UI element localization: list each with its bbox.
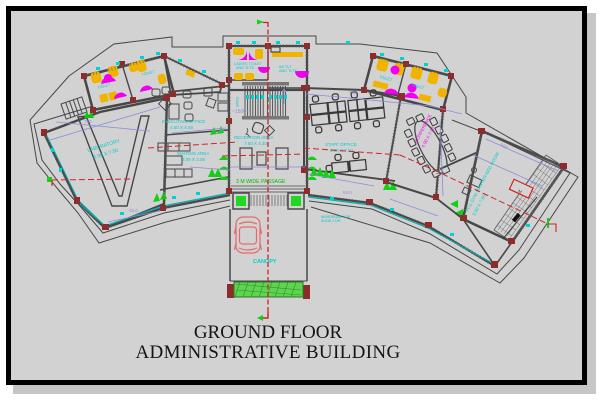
svg-text:AND TLTS: AND TLTS	[279, 69, 297, 73]
svg-text:STAIR: STAIR	[235, 97, 239, 108]
svg-text:ADMINISTRATIVE BUILDING: ADMINISTRATIVE BUILDING	[135, 342, 400, 363]
svg-text:7.50 X 4.40: 7.50 X 4.40	[244, 141, 268, 146]
svg-text:AND TLTS: AND TLTS	[236, 66, 254, 70]
svg-text:~1500~: ~1500~	[232, 109, 249, 115]
svg-text:3 M WIDE PASSAGE: 3 M WIDE PASSAGE	[236, 179, 286, 185]
svg-text:EXECUTIVE OFFICE: EXECUTIVE OFFICE	[162, 119, 205, 124]
svg-text:750: 750	[84, 119, 92, 124]
svg-text:CANOPY: CANOPY	[253, 259, 277, 265]
svg-text:749: 749	[349, 90, 357, 95]
svg-text:45.0: 45.0	[129, 208, 138, 213]
svg-text:WAITING AREA: WAITING AREA	[177, 151, 209, 156]
svg-text:3.05 X 3.05: 3.05 X 3.05	[182, 157, 206, 162]
svg-text:STAFF OFFICE: STAFF OFFICE	[325, 142, 357, 147]
svg-text:4.50 X 4.55: 4.50 X 4.55	[170, 125, 194, 130]
svg-text:54.0: 54.0	[343, 190, 352, 195]
svg-text:GROUND FLOOR: GROUND FLOOR	[194, 322, 343, 343]
svg-text:~2.0~: ~2.0~	[213, 128, 225, 133]
svg-text:SLIDE 2 DR: SLIDE 2 DR	[321, 219, 341, 223]
